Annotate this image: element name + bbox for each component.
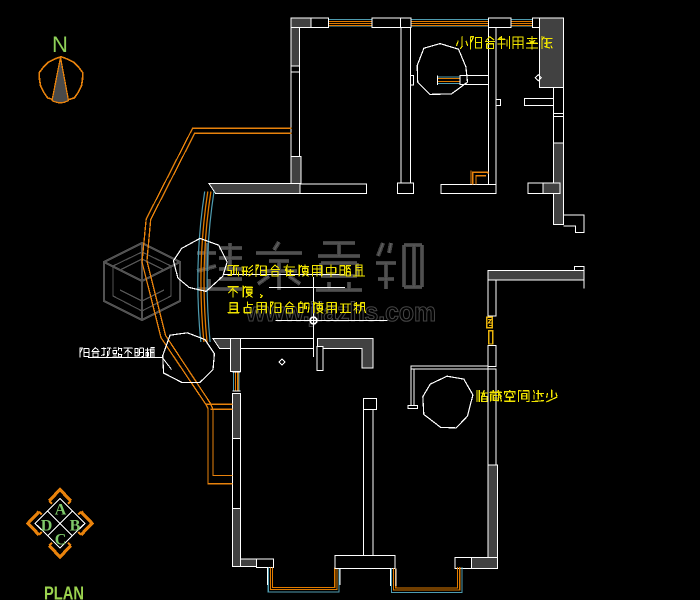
svg-text:C: C	[55, 532, 67, 549]
svg-text:N: N	[52, 32, 68, 57]
svg-text:A: A	[55, 502, 67, 519]
svg-text:PLAN: PLAN	[44, 584, 84, 600]
svg-text:B: B	[70, 518, 81, 535]
svg-text:D: D	[41, 518, 53, 535]
